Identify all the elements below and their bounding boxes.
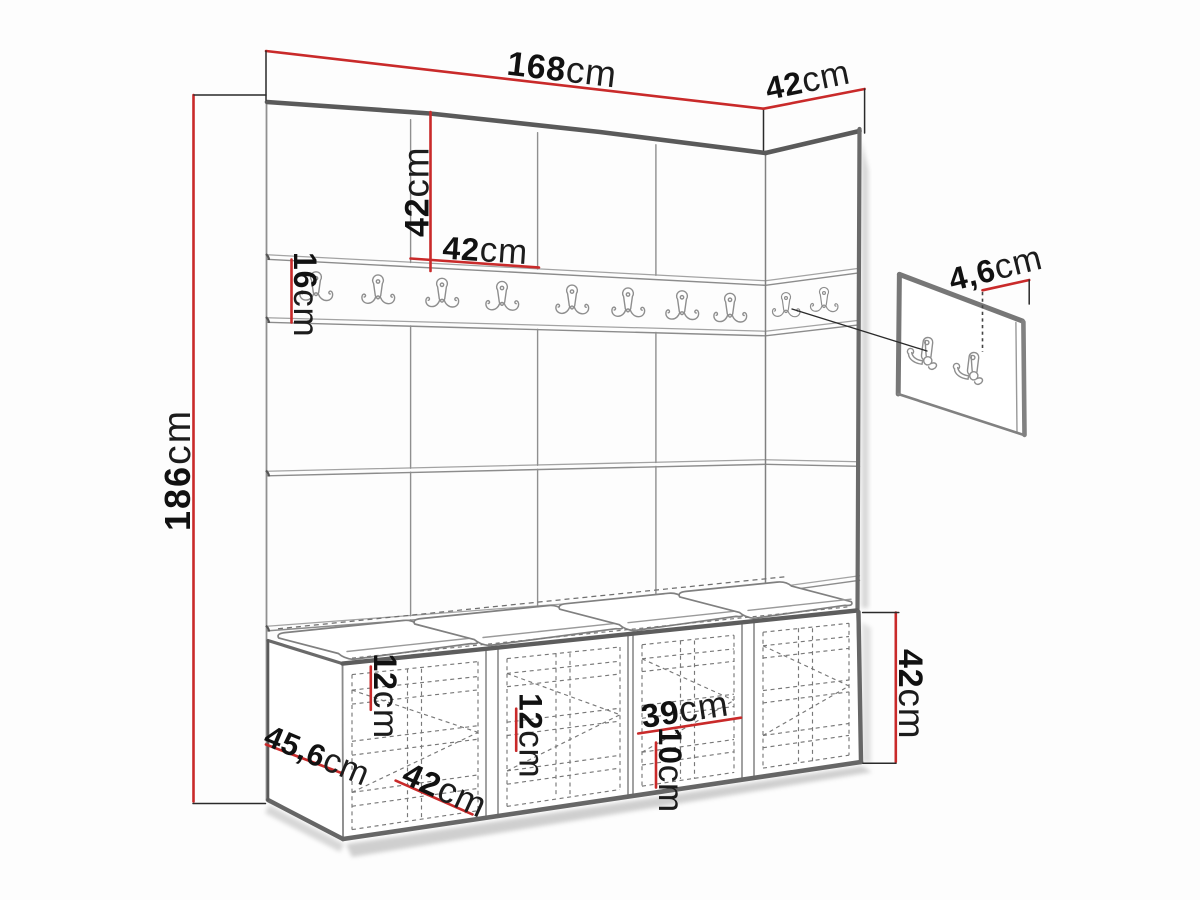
svg-text:42cm: 42cm [891,649,932,739]
svg-text:186cm: 186cm [156,409,199,531]
svg-text:12cm: 12cm [366,654,405,739]
svg-text:12cm: 12cm [512,693,551,778]
svg-text:10cm: 10cm [651,728,690,813]
svg-text:42cm: 42cm [441,228,529,273]
svg-text:16cm: 16cm [286,252,325,337]
svg-text:42cm: 42cm [396,147,437,237]
